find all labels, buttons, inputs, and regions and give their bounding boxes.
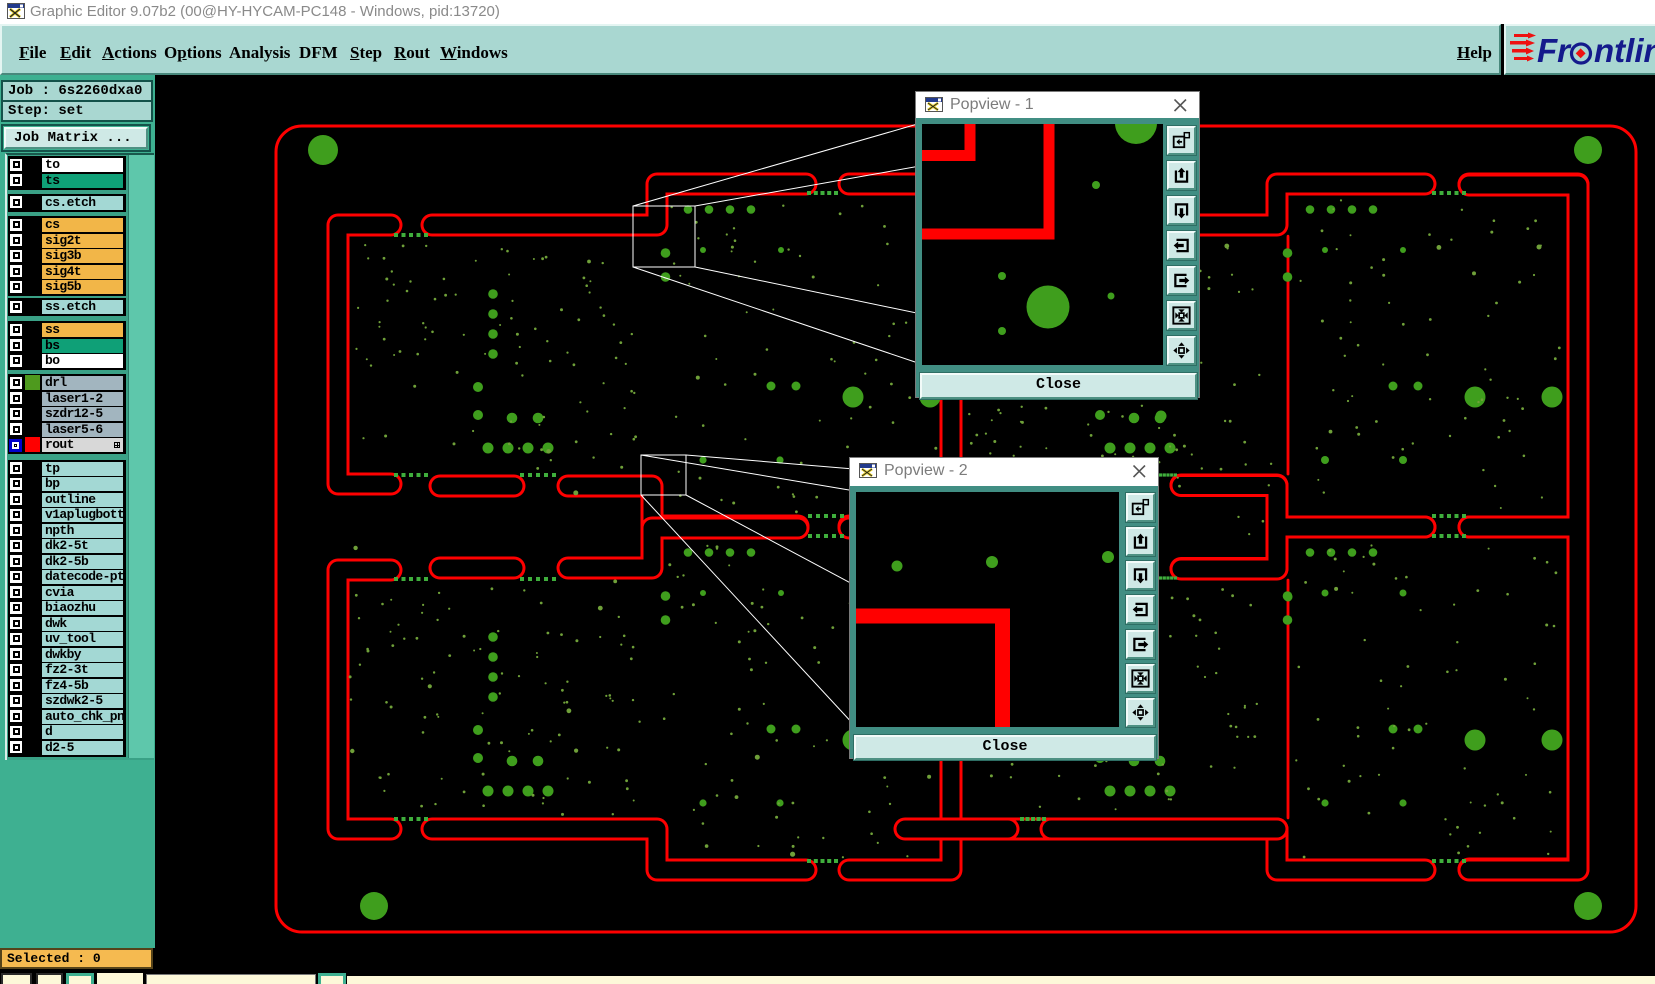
svg-text:Fr: Fr (1537, 32, 1572, 69)
svg-text:ntline: ntline (1594, 32, 1655, 69)
